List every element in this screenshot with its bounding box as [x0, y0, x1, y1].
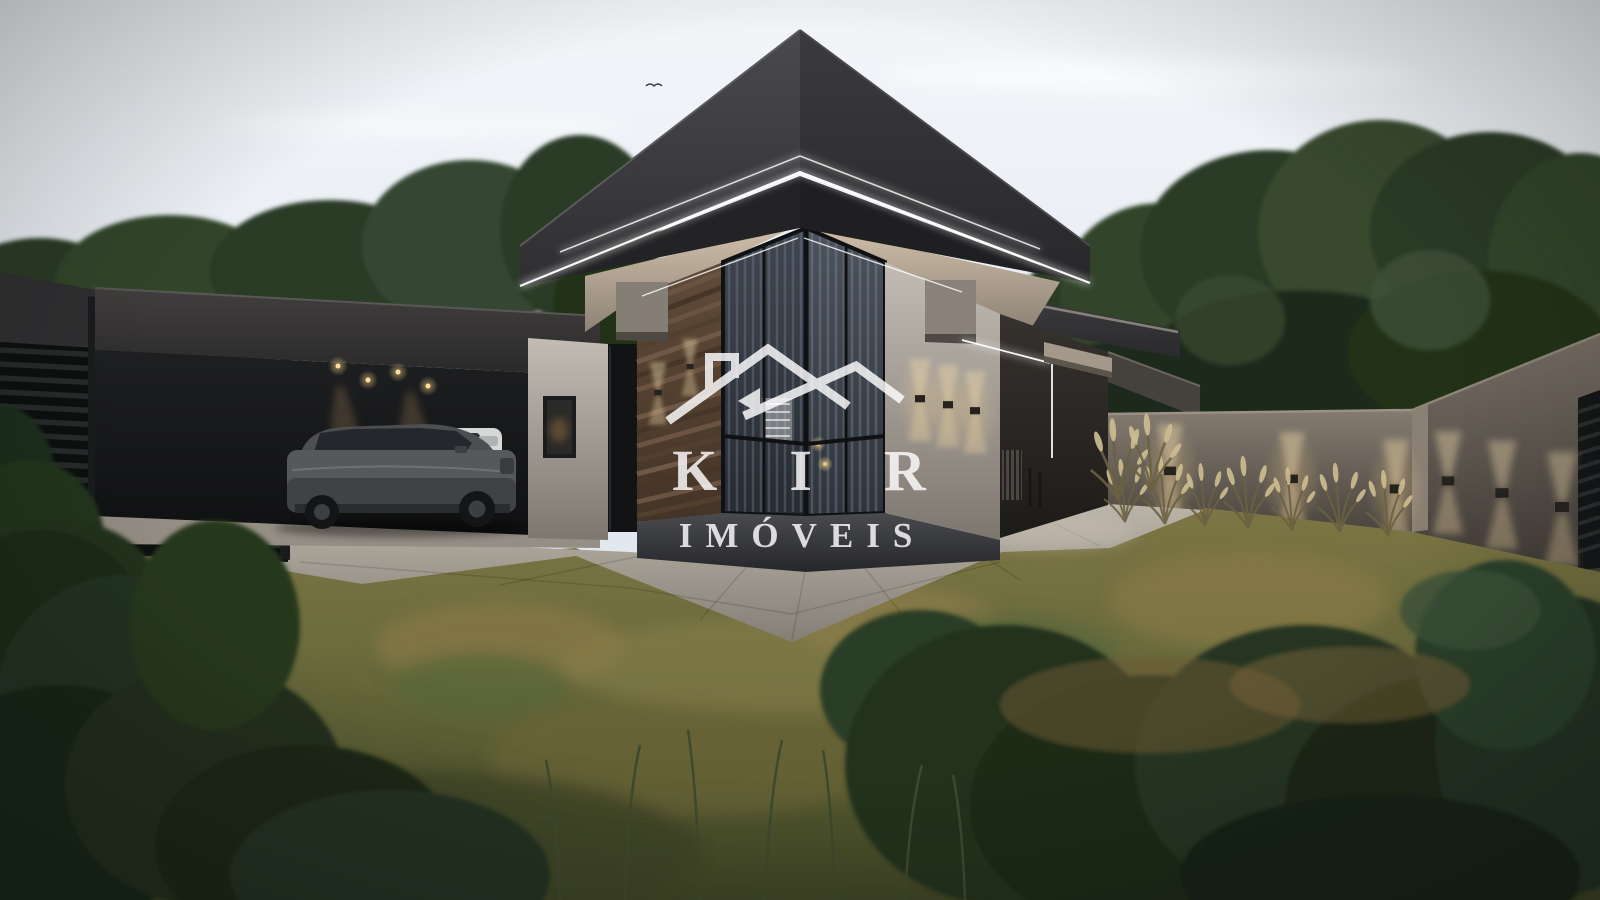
render-image: KIR IMÓVEIS: [0, 0, 1600, 900]
brand-tagline: IMÓVEIS: [679, 515, 926, 555]
house-render-scene: KIR IMÓVEIS: [0, 0, 1600, 900]
brand-name: KIR: [672, 438, 998, 503]
